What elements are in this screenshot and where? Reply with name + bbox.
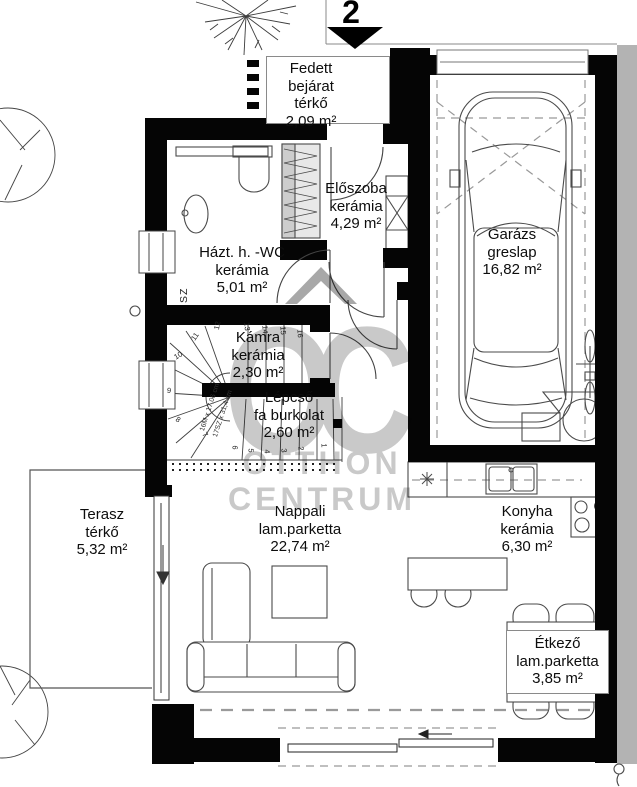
room-label-eloszoba: Előszoba kerámia 4,29 m² bbox=[300, 180, 412, 233]
room-floor: térkő bbox=[54, 524, 150, 542]
room-floor: kerámia bbox=[180, 262, 304, 280]
stair-step-number: 9 bbox=[167, 386, 172, 395]
room-name: Garázs bbox=[452, 226, 572, 244]
room-floor: lam.parketta bbox=[240, 521, 360, 539]
room-floor: lam.parketta bbox=[507, 653, 608, 671]
room-name: Kámra bbox=[210, 329, 306, 347]
room-floor: fa burkolat bbox=[239, 407, 339, 425]
room-area: 5,32 m² bbox=[54, 541, 150, 559]
room-floor: kerámia bbox=[300, 198, 412, 216]
stair-step-number: 8 bbox=[174, 415, 183, 425]
room-area: 2,30 m² bbox=[210, 364, 306, 382]
stair-step-number: 15 bbox=[278, 326, 288, 335]
room-name: Házt. h. -WC bbox=[180, 244, 304, 262]
stair-step-number: 1 bbox=[320, 443, 329, 447]
room-area: 2,60 m² bbox=[239, 424, 339, 442]
stair-step-number: 12 bbox=[212, 320, 223, 330]
room-area: 22,74 m² bbox=[240, 538, 360, 556]
stair-step-number: 4 bbox=[262, 449, 271, 454]
room-floor: kerámia bbox=[467, 521, 587, 539]
room-name: Előszoba bbox=[300, 180, 412, 198]
stair-step-number: 14 bbox=[260, 325, 270, 334]
room-name: Lépcső bbox=[239, 389, 339, 407]
room-label-terasz: Terasz térkő 5,32 m² bbox=[54, 506, 150, 559]
room-floor: kerámia bbox=[210, 347, 306, 365]
stair-step-number: 3 bbox=[279, 448, 288, 453]
room-name: Terasz bbox=[54, 506, 150, 524]
stair-step-number: 5 bbox=[247, 448, 256, 452]
room-name: Konyha bbox=[467, 503, 587, 521]
entrance-arrow-icon bbox=[327, 27, 383, 49]
room-floor: greslap bbox=[452, 244, 572, 262]
floorplan-page: OC OTTHON CENTRUM 2 Fedett bejárat térkő… bbox=[0, 0, 637, 787]
stair-step-number: 16 bbox=[295, 329, 305, 338]
stair-step-number: 11 bbox=[189, 331, 201, 343]
room-area: 4,29 m² bbox=[300, 215, 412, 233]
room-label-kamra: Kámra kerámia 2,30 m² bbox=[210, 329, 306, 382]
room-label-lepcso: Lépcső fa burkolat 2,60 m² bbox=[239, 389, 339, 442]
room-area: 3,85 m² bbox=[507, 670, 608, 688]
room-area: 2,09 m² bbox=[269, 113, 353, 131]
room-label-konyha: Konyha kerámia 6,30 m² bbox=[467, 503, 587, 556]
room-floor: térkő bbox=[269, 95, 353, 113]
room-label-fedett-bejarat: Fedett bejárat térkő 2,09 m² bbox=[266, 56, 390, 124]
stair-step-number: 10 bbox=[172, 350, 184, 362]
room-area: 5,01 m² bbox=[180, 279, 304, 297]
stair-step-number: 13 bbox=[242, 322, 252, 331]
room-label-etkezo: Étkező lam.parketta 3,85 m² bbox=[506, 630, 609, 694]
room-area: 16,82 m² bbox=[452, 261, 572, 279]
stair-step-number: 2 bbox=[296, 446, 305, 451]
stair-step-number: 6 bbox=[230, 445, 239, 450]
room-label-garazs: Garázs greslap 16,82 m² bbox=[452, 226, 572, 279]
room-label-nappali: Nappali lam.parketta 22,74 m² bbox=[240, 503, 360, 556]
room-area: 6,30 m² bbox=[467, 538, 587, 556]
sz-annotation: SZ bbox=[178, 288, 190, 303]
room-name: Étkező bbox=[507, 635, 608, 653]
room-name: Nappali bbox=[240, 503, 360, 521]
room-name: Fedett bejárat bbox=[269, 60, 353, 95]
room-label-haztartasi-wc: Házt. h. -WC kerámia 5,01 m² bbox=[180, 244, 304, 297]
